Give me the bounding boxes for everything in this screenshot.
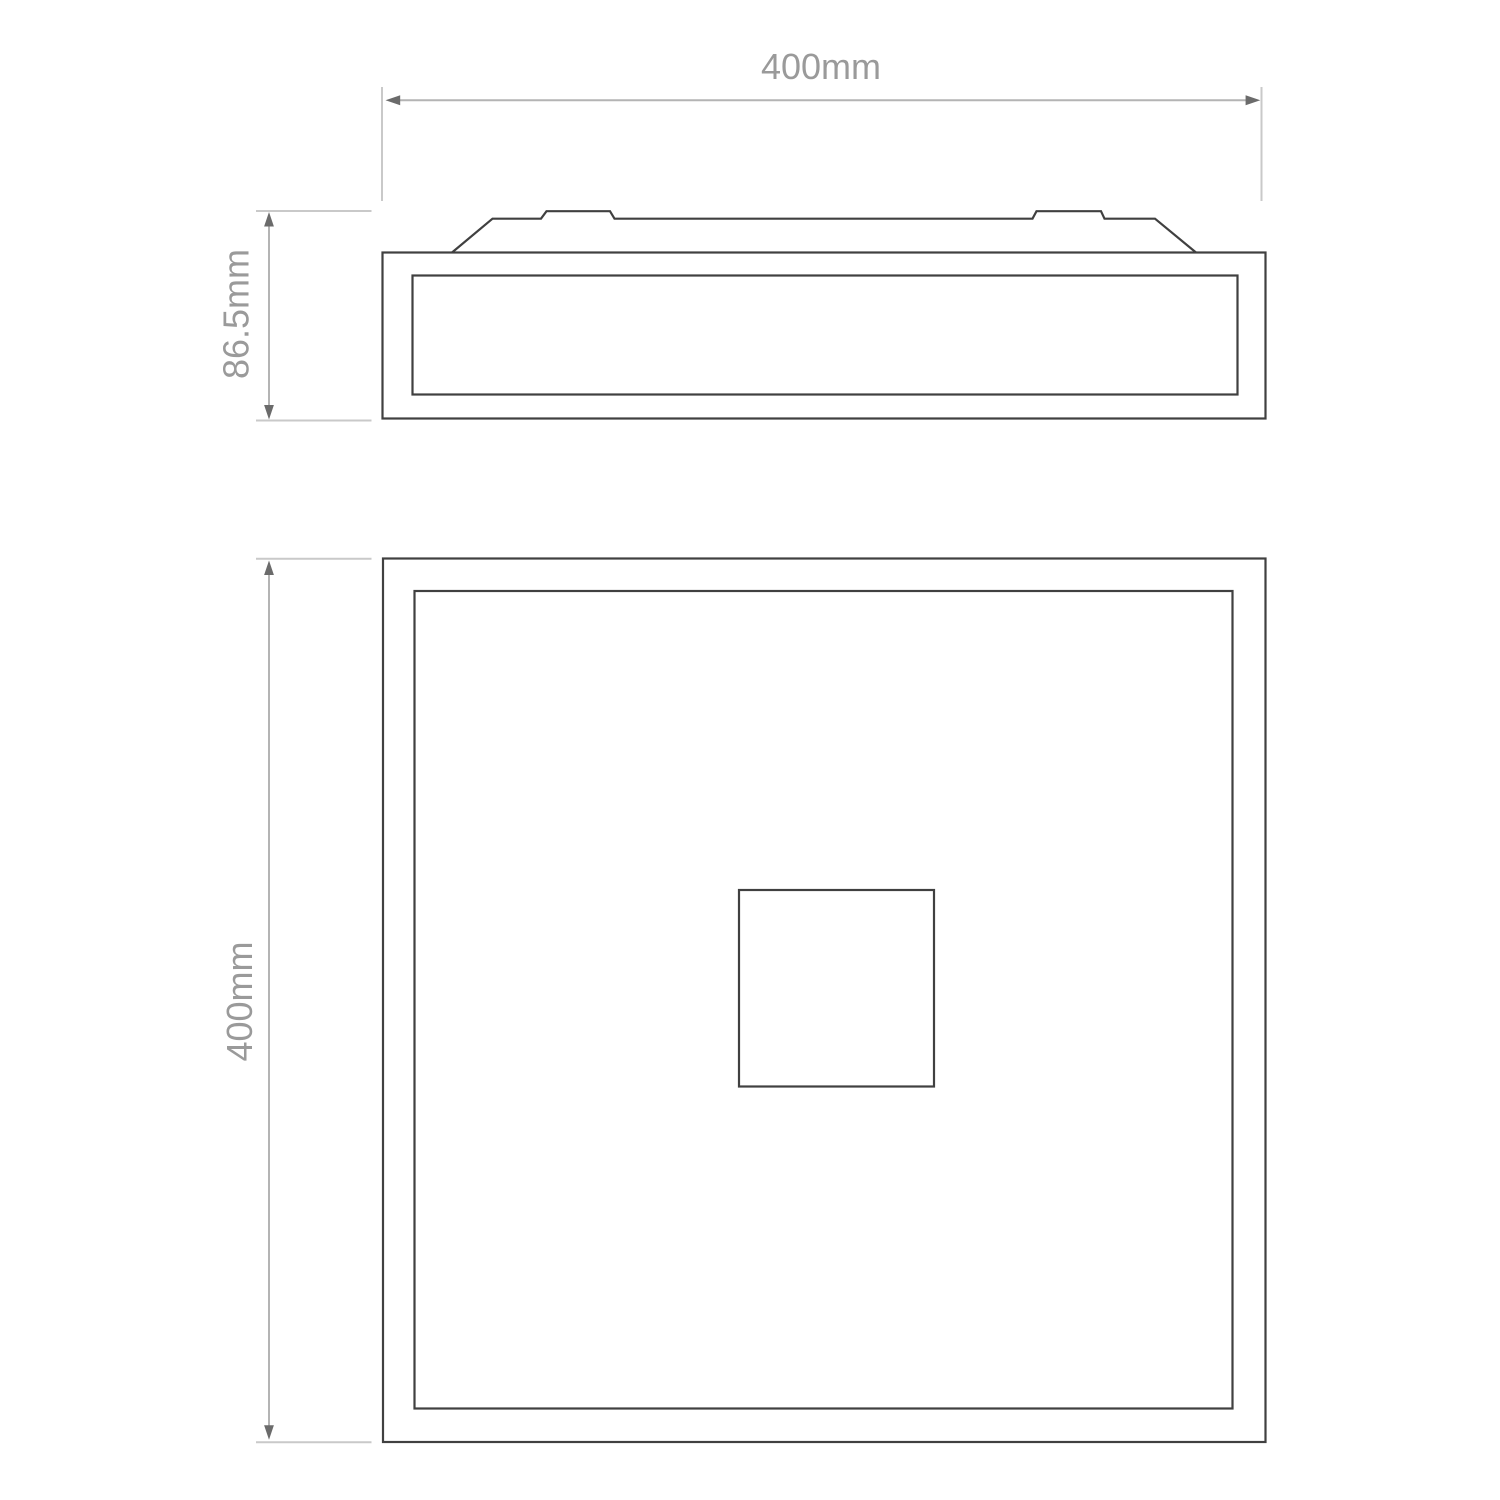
svg-text:86.5mm: 86.5mm xyxy=(216,249,257,379)
svg-text:400mm: 400mm xyxy=(761,46,881,87)
svg-text:400mm: 400mm xyxy=(219,941,260,1061)
